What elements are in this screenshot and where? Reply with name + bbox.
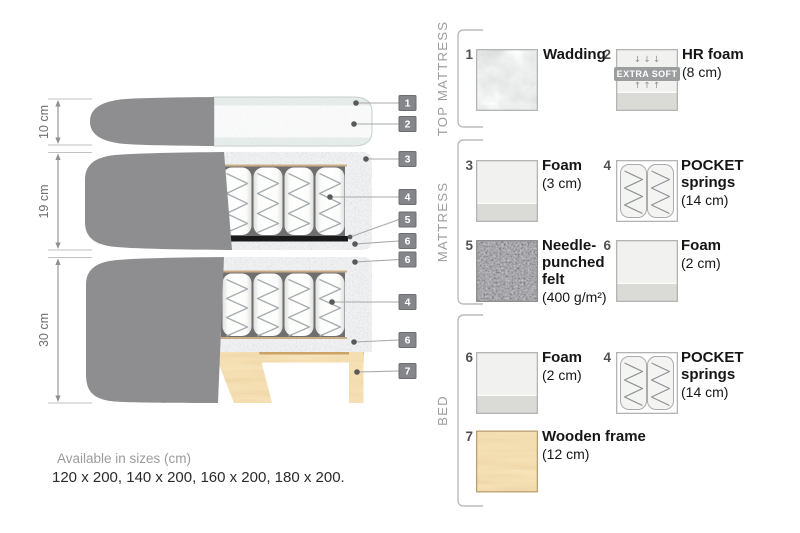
swatch-hr-foam <box>617 50 678 111</box>
legend-title-bed: BED <box>435 395 450 426</box>
swatch-needle-punched-felt <box>477 241 538 302</box>
dim-label-top-mattress: 10 cm <box>37 105 51 139</box>
dim-label-mattress: 19 cm <box>37 184 51 218</box>
svg-text:2: 2 <box>405 119 411 131</box>
wooden-frame <box>214 352 364 403</box>
legend-item-number: 4 <box>591 158 611 173</box>
legend-item-number: 6 <box>453 350 473 365</box>
legend-title-mattress: MATTRESS <box>435 182 450 262</box>
legend-item-label: HR foam (8 cm) <box>682 46 744 81</box>
legend-item-number: 3 <box>453 158 473 173</box>
legend-item-label: POCKET springs (14 cm) <box>681 349 744 401</box>
legend-item-label: Needle- punched felt (400 g/m²) <box>542 237 607 306</box>
svg-text:5: 5 <box>405 214 411 226</box>
mattress-section <box>85 152 372 250</box>
dimension-19cm: 19 cm <box>37 153 92 251</box>
legend-group-bed: BED <box>435 315 483 506</box>
spring-fabric-edge <box>220 165 347 167</box>
legend-item-label: Foam (2 cm) <box>681 237 721 272</box>
legend-item-number: 7 <box>453 429 473 444</box>
legend-item-label: Foam (3 cm) <box>542 157 582 192</box>
mattress-cover <box>85 152 232 250</box>
swatch-pocket-springs-bed <box>617 353 678 414</box>
swatch-wadding <box>477 50 538 111</box>
swatch-foam-2cm-bed <box>477 353 538 414</box>
legend-title-top-mattress: TOP MATTRESS <box>435 21 450 137</box>
bed-cover <box>86 257 224 403</box>
legend-item-number: 1 <box>453 47 473 62</box>
svg-text:7: 7 <box>405 366 411 378</box>
svg-text:6: 6 <box>405 335 411 347</box>
legend-item-label: Wadding <box>543 46 606 64</box>
frame-leg-right <box>349 352 364 403</box>
sizes-heading: Available in sizes (cm) <box>57 451 191 466</box>
swatch-foam-3cm <box>477 161 538 222</box>
svg-text:3: 3 <box>405 154 411 166</box>
svg-text:4: 4 <box>405 192 411 204</box>
svg-text:6: 6 <box>405 254 411 266</box>
sizes-list: 120 x 200, 140 x 200, 160 x 200, 180 x 2… <box>52 469 345 486</box>
svg-text:6: 6 <box>405 236 411 248</box>
top-mattress-section <box>90 97 372 146</box>
swatch-pocket-springs <box>617 161 678 222</box>
top-mattress-cover <box>90 97 214 146</box>
felt-layer <box>220 236 348 242</box>
legend-group-top-mattress: TOP MATTRESS <box>435 21 483 137</box>
legend-item-label: POCKET springs (14 cm) <box>681 157 744 209</box>
swatch-foam-2cm <box>617 241 678 302</box>
dim-label-bed: 30 cm <box>37 313 51 347</box>
dimension-30cm: 30 cm <box>37 258 92 404</box>
legend-item-number: 4 <box>591 350 611 365</box>
legend-item-number: 5 <box>453 238 473 253</box>
bed-section <box>86 257 372 403</box>
legend-item-label: Foam (2 cm) <box>542 349 582 384</box>
mattress-infographic: 10 cm 19 cm 30 cm <box>0 0 800 533</box>
legend-item-label: Wooden frame (12 cm) <box>542 428 646 463</box>
svg-text:1: 1 <box>405 98 411 110</box>
swatch-wooden-frame <box>477 431 538 492</box>
dimension-10cm: 10 cm <box>37 99 92 145</box>
svg-text:4: 4 <box>405 297 411 309</box>
